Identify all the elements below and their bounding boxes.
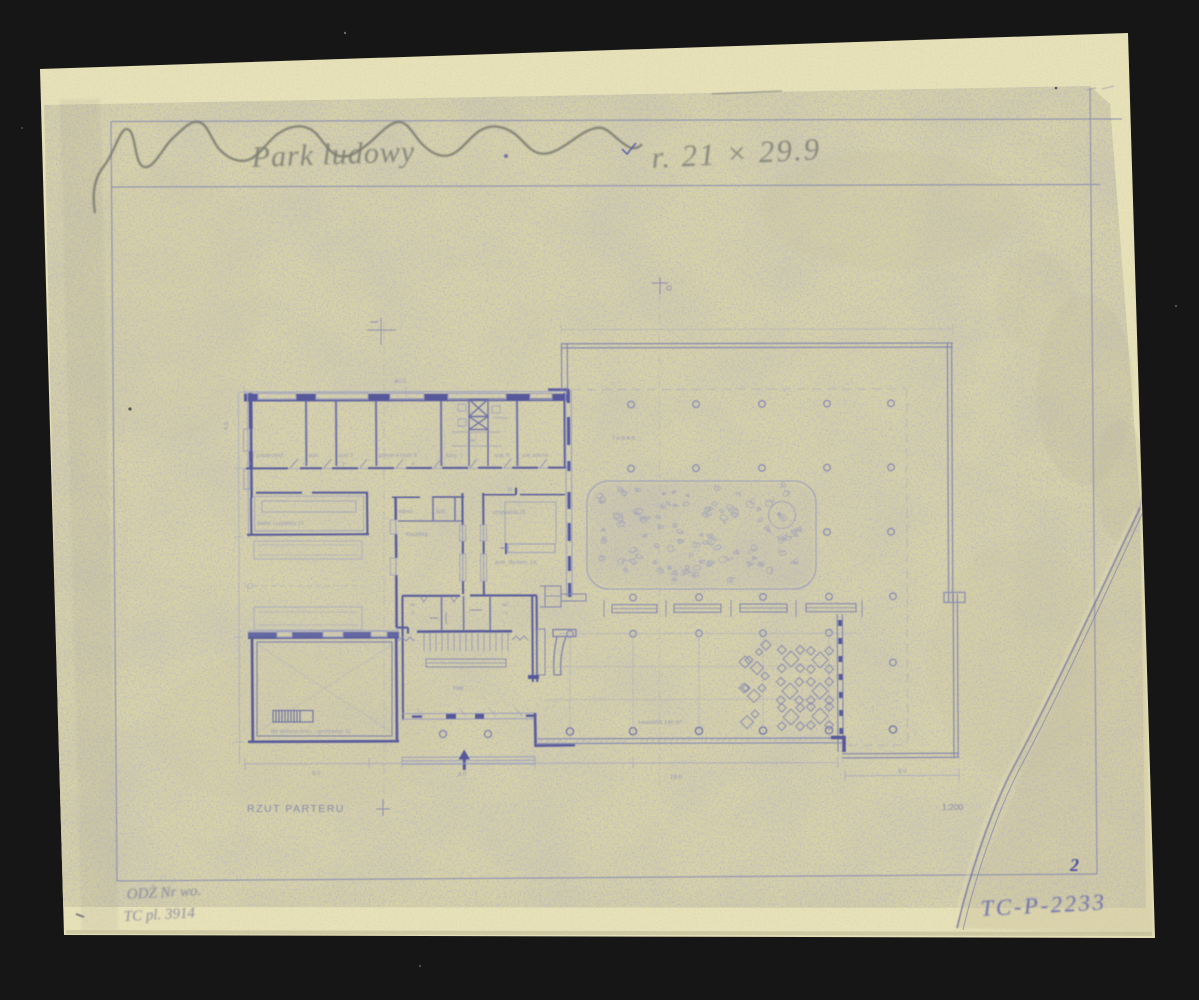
- svg-text:kawiarnia 140 m²: kawiarnia 140 m²: [638, 720, 682, 726]
- svg-text:16: 16: [246, 461, 252, 466]
- svg-text:9.0: 9.0: [312, 771, 321, 777]
- svg-text:9: 9: [342, 461, 345, 466]
- svg-text:pok.: pok.: [309, 453, 319, 459]
- svg-text:Park ludowy: Park ludowy: [250, 135, 416, 174]
- svg-text:Kuchnia: Kuchnia: [406, 532, 428, 538]
- svg-text:pom. dla keln. 14: pom. dla keln. 14: [495, 560, 536, 566]
- svg-text:4.0: 4.0: [458, 772, 467, 778]
- svg-text:spiż.: spiż.: [436, 509, 447, 515]
- svg-text:umywalnia 15: umywalnia 15: [493, 510, 525, 516]
- svg-text:2 pokoje nocl.: 2 pokoje nocl.: [252, 453, 284, 459]
- svg-text:8: 8: [412, 461, 415, 466]
- svg-text:wc: wc: [502, 603, 508, 608]
- svg-text:pok. 9: pok. 9: [339, 453, 353, 459]
- svg-text:pokoje 4 osob. 8: pokoje 4 osob. 8: [379, 453, 417, 459]
- svg-text:RZUT PARTERU: RZUT PARTERU: [247, 803, 345, 815]
- svg-text:wc: wc: [410, 603, 416, 608]
- svg-text:odpad.: odpad.: [398, 509, 414, 515]
- svg-text:12: 12: [302, 461, 308, 466]
- svg-text:40.0: 40.0: [394, 379, 406, 385]
- svg-text:16: 16: [507, 487, 513, 492]
- svg-text:kanc. 7: kanc. 7: [446, 453, 463, 459]
- svg-text:Hall: Hall: [453, 686, 463, 692]
- svg-text:świetl. i czytelnia 10: świetl. i czytelnia 10: [257, 521, 304, 527]
- svg-text:wc: wc: [470, 438, 477, 444]
- svg-text:pok. kierow.: pok. kierow.: [522, 453, 549, 459]
- svg-text:dla wózków dziec. i sportowego: dla wózków dziec. i sportowego 11: [271, 729, 351, 735]
- svg-text:19.0: 19.0: [670, 775, 682, 781]
- svg-text:9.0: 9.0: [898, 769, 907, 775]
- svg-text:2: 2: [1069, 855, 1079, 875]
- svg-text:szat. 6: szat. 6: [494, 453, 509, 459]
- svg-text:o: o: [412, 611, 415, 616]
- svg-text:TARAS: TARAS: [612, 436, 636, 442]
- svg-text:9.6: 9.6: [224, 422, 230, 430]
- svg-text:1:200: 1:200: [942, 802, 964, 812]
